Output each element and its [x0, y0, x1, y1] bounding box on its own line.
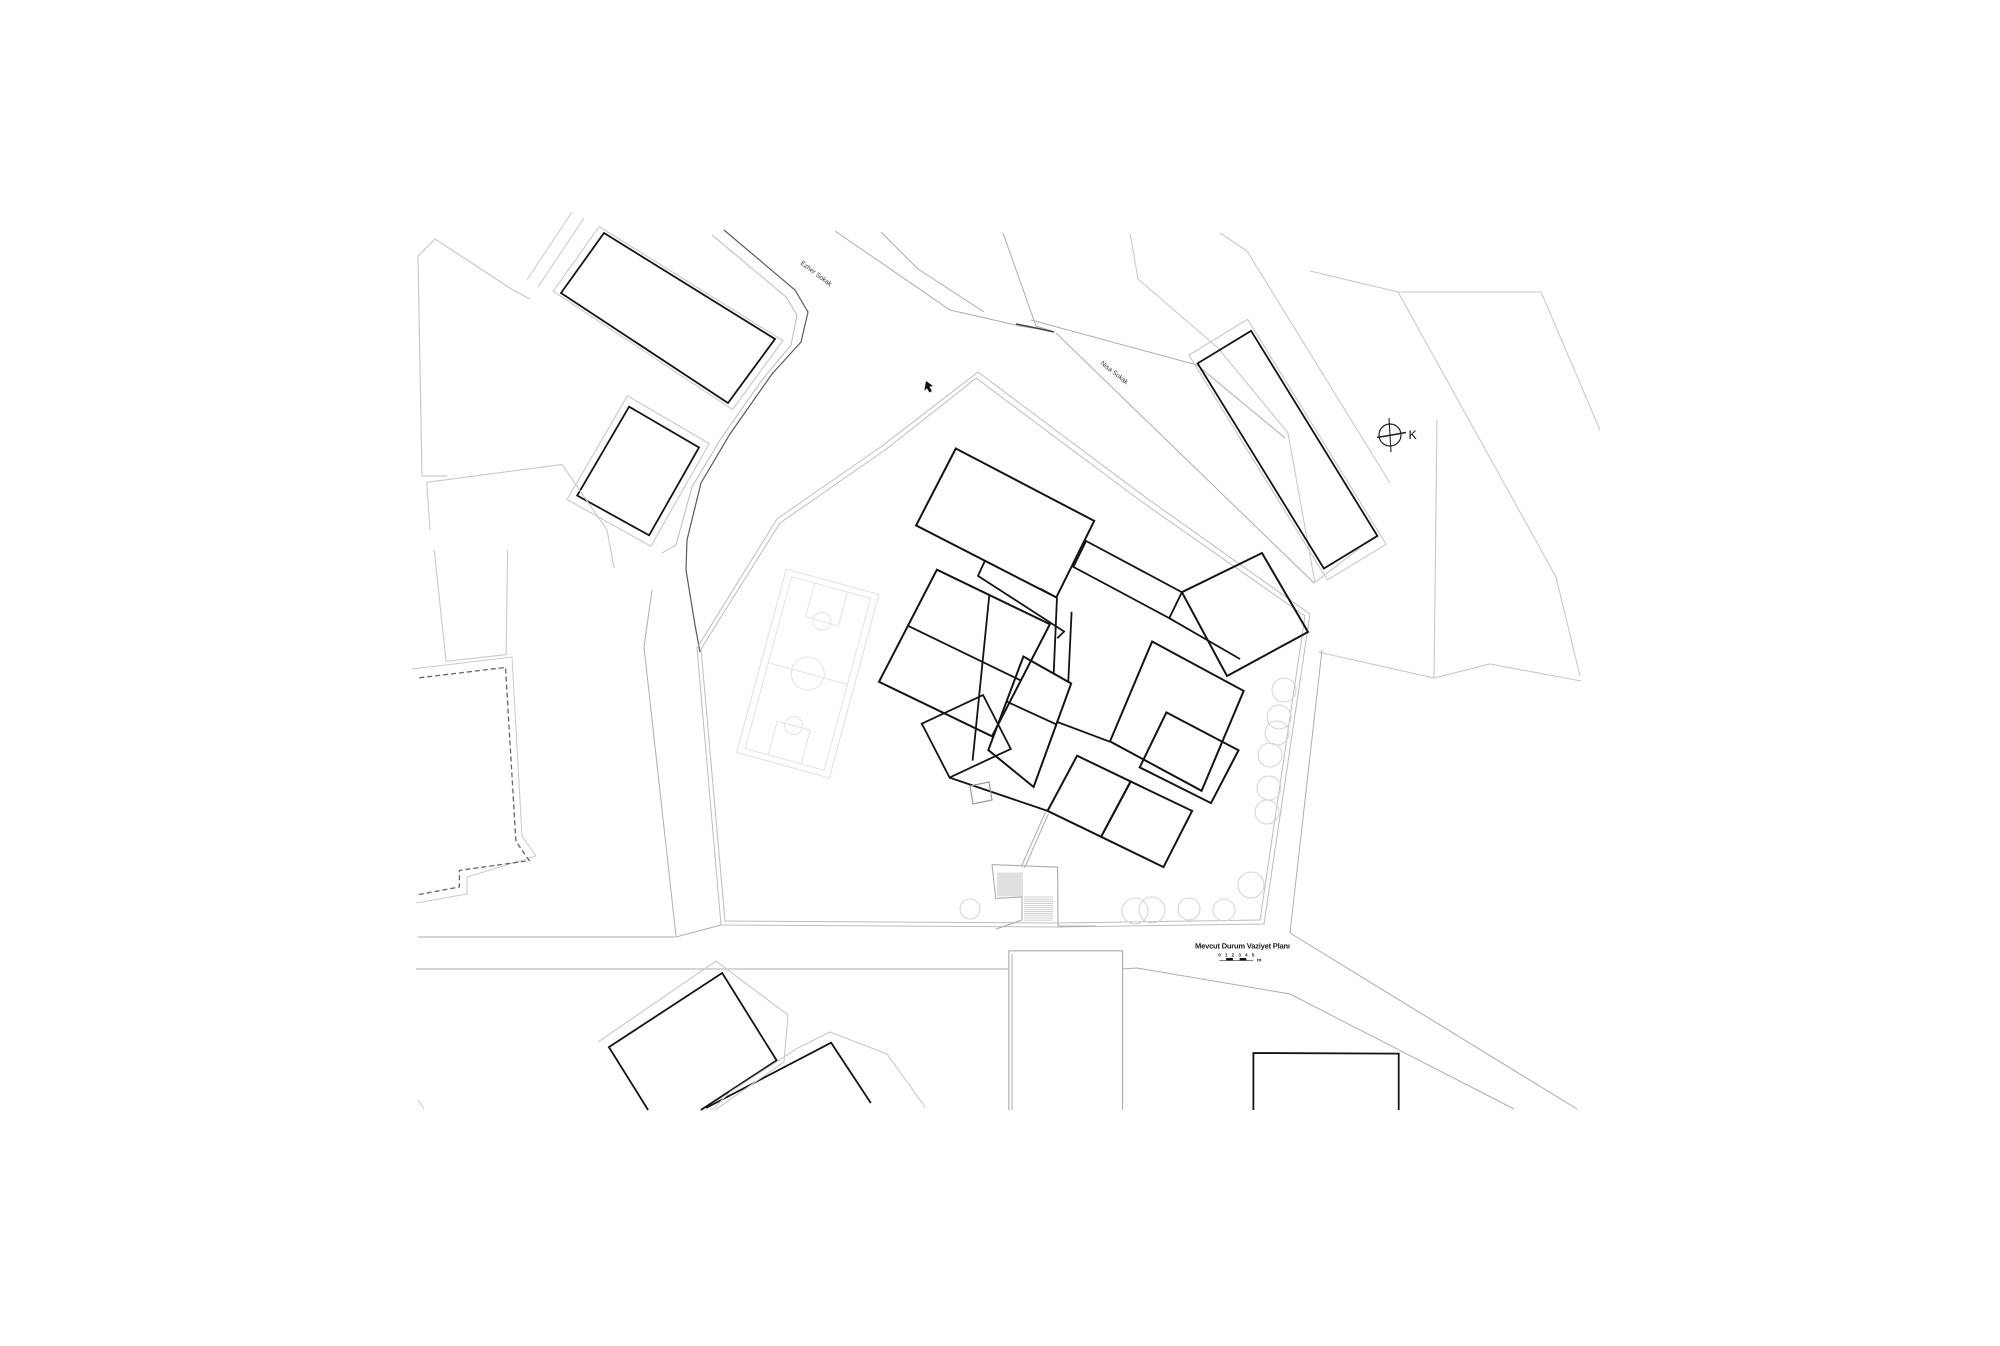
svg-text:5: 5: [1252, 953, 1255, 958]
svg-text:3: 3: [1238, 953, 1241, 958]
svg-text:Mevcut Durum Vaziyet Planı: Mevcut Durum Vaziyet Planı: [1195, 942, 1290, 951]
svg-text:0: 0: [1218, 953, 1221, 958]
svg-text:4: 4: [1245, 953, 1248, 958]
svg-text:1: 1: [1225, 953, 1228, 958]
svg-text:2: 2: [1232, 953, 1235, 958]
svg-text:K: K: [1409, 428, 1418, 442]
svg-text:m: m: [1257, 958, 1262, 964]
